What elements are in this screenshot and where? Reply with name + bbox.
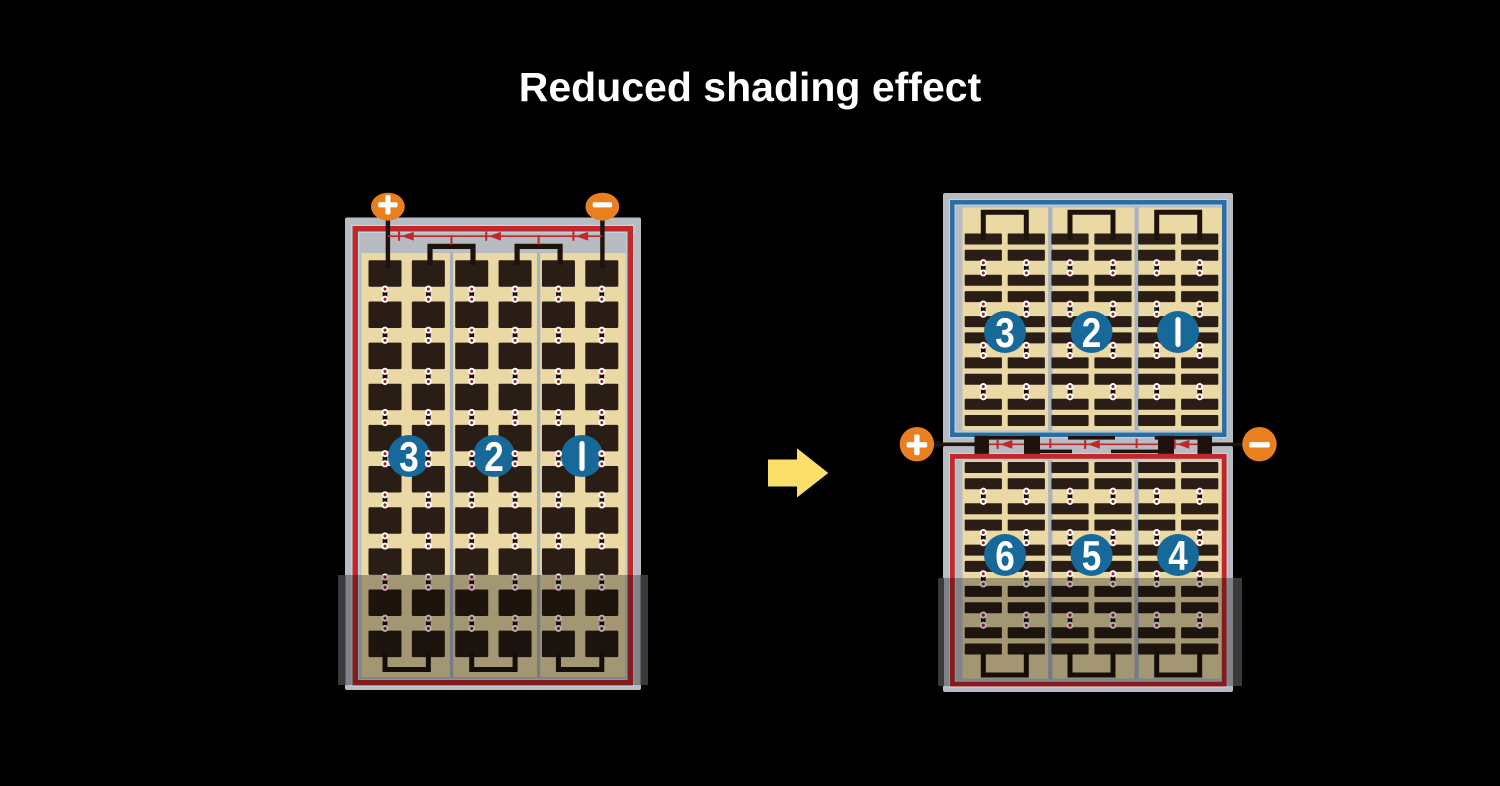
svg-text:Reduced shading effect: Reduced shading effect [519,64,982,110]
svg-text:4: 4 [1168,532,1188,579]
svg-text:3: 3 [995,309,1015,356]
svg-text:5: 5 [1082,532,1102,579]
svg-text:3: 3 [399,433,419,480]
svg-text:2: 2 [1082,309,1102,356]
svg-text:6: 6 [995,532,1015,579]
svg-text:2: 2 [484,433,504,480]
